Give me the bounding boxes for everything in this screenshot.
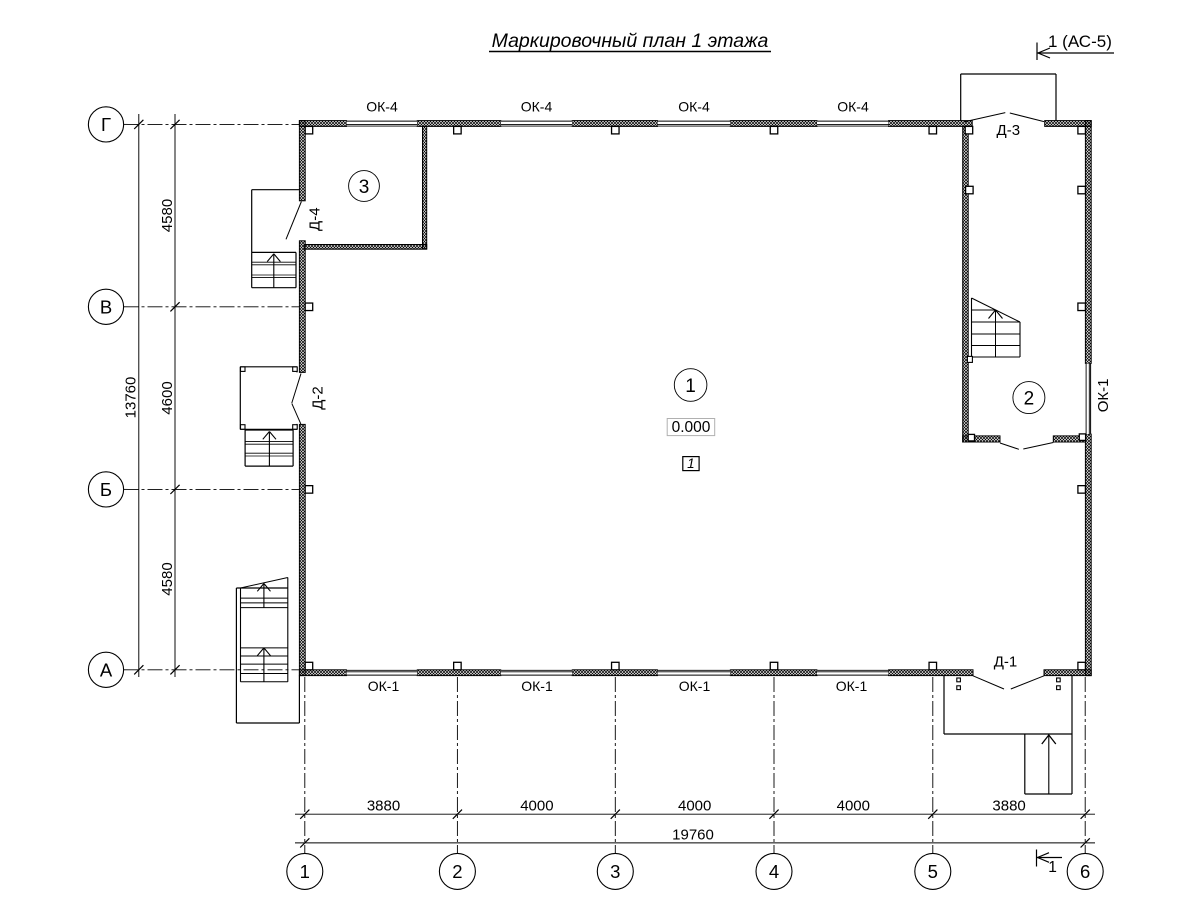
svg-text:1: 1 <box>1048 859 1057 876</box>
svg-text:ОК-4: ОК-4 <box>837 99 869 115</box>
svg-text:ОК-1: ОК-1 <box>368 678 400 694</box>
svg-text:1: 1 <box>300 861 310 882</box>
svg-text:5: 5 <box>928 861 938 882</box>
svg-text:Д-3: Д-3 <box>997 122 1021 139</box>
svg-text:3: 3 <box>610 861 620 882</box>
svg-text:ОК-4: ОК-4 <box>366 99 398 115</box>
svg-text:0.000: 0.000 <box>672 419 711 436</box>
svg-text:3880: 3880 <box>992 798 1025 815</box>
svg-text:2: 2 <box>1024 388 1035 409</box>
svg-text:Д-4: Д-4 <box>307 207 324 231</box>
svg-text:1 (АС-5): 1 (АС-5) <box>1048 32 1112 51</box>
svg-text:Маркировочный план 1 этажа: Маркировочный план 1 этажа <box>492 30 769 52</box>
svg-text:А: А <box>100 659 113 680</box>
svg-text:4: 4 <box>769 861 779 882</box>
svg-text:4600: 4600 <box>159 381 176 414</box>
svg-text:ОК-1: ОК-1 <box>836 678 868 694</box>
svg-text:Д-2: Д-2 <box>310 386 327 410</box>
svg-text:3: 3 <box>359 177 370 198</box>
svg-text:4000: 4000 <box>678 798 711 815</box>
svg-text:19760: 19760 <box>672 827 714 844</box>
svg-text:Д-1: Д-1 <box>994 654 1018 671</box>
svg-text:Б: Б <box>100 479 112 500</box>
svg-text:4000: 4000 <box>520 798 553 815</box>
svg-text:13760: 13760 <box>123 377 140 419</box>
svg-text:4580: 4580 <box>159 199 176 232</box>
svg-text:3880: 3880 <box>367 798 400 815</box>
svg-text:4580: 4580 <box>159 562 176 595</box>
svg-text:1: 1 <box>685 376 696 397</box>
svg-text:2: 2 <box>452 861 462 882</box>
svg-text:ОК-1: ОК-1 <box>679 678 711 694</box>
svg-text:ОК-1: ОК-1 <box>521 678 553 694</box>
svg-text:В: В <box>100 296 112 317</box>
svg-text:4000: 4000 <box>837 798 870 815</box>
svg-text:ОК-1: ОК-1 <box>1095 379 1112 413</box>
svg-text:6: 6 <box>1080 861 1090 882</box>
svg-text:ОК-4: ОК-4 <box>521 99 553 115</box>
svg-text:Г: Г <box>101 114 111 135</box>
svg-text:1: 1 <box>687 456 695 471</box>
svg-text:ОК-4: ОК-4 <box>678 99 710 115</box>
